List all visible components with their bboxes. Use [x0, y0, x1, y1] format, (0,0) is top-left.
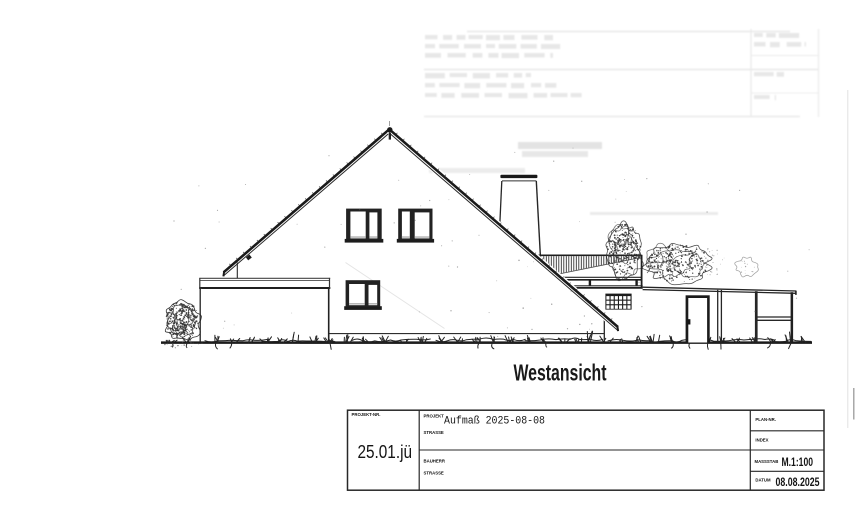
svg-text:INDEX: INDEX: [755, 438, 768, 443]
svg-text:25.01.jü: 25.01.jü: [358, 442, 413, 462]
svg-text:M.1:100: M.1:100: [782, 456, 814, 469]
svg-text:PROJEKT: PROJEKT: [424, 413, 445, 418]
svg-text:08.08.2025: 08.08.2025: [776, 475, 820, 489]
svg-text:DATUM: DATUM: [755, 477, 771, 482]
svg-text:PROJEKT-NR.: PROJEKT-NR.: [352, 412, 381, 417]
svg-text:STRASSE: STRASSE: [424, 471, 444, 476]
svg-text:BAUHERR: BAUHERR: [424, 459, 446, 464]
svg-text:Westansicht: Westansicht: [514, 360, 607, 386]
svg-text:Aufmaß 2025-08-08: Aufmaß 2025-08-08: [444, 416, 545, 428]
svg-text:PLAN-NR.: PLAN-NR.: [755, 417, 776, 422]
svg-text:STRASSE: STRASSE: [424, 430, 444, 435]
svg-text:MASSSTAB: MASSSTAB: [755, 459, 779, 464]
